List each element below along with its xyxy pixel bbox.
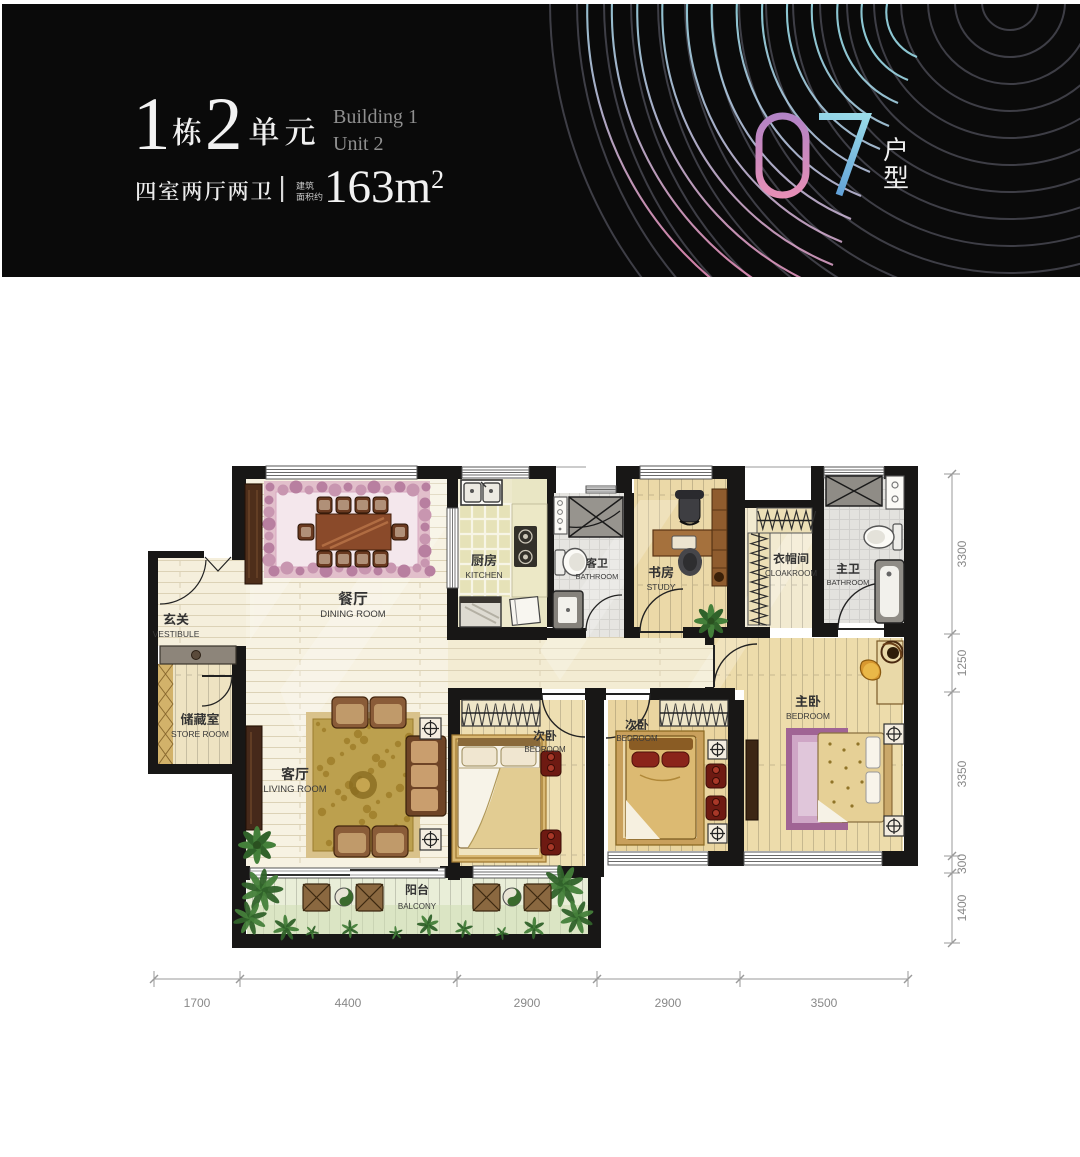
svg-text:2900: 2900 xyxy=(514,996,541,1010)
svg-text:VESTIBULE: VESTIBULE xyxy=(153,629,200,639)
svg-text:1700: 1700 xyxy=(184,996,211,1010)
svg-text:STORE ROOM: STORE ROOM xyxy=(171,729,229,739)
svg-text:Building 1: Building 1 xyxy=(333,106,418,128)
svg-text:163m2: 163m2 xyxy=(324,161,444,213)
svg-text:1400: 1400 xyxy=(955,894,969,921)
svg-text:4400: 4400 xyxy=(335,996,362,1010)
svg-text:3350: 3350 xyxy=(955,760,969,787)
svg-text:300: 300 xyxy=(955,854,969,874)
svg-text:BEDROOM: BEDROOM xyxy=(524,745,566,754)
svg-text:KITCHEN: KITCHEN xyxy=(465,570,502,580)
svg-text:2900: 2900 xyxy=(655,996,682,1010)
svg-text:Unit 2: Unit 2 xyxy=(333,133,384,155)
svg-text:DINING ROOM: DINING ROOM xyxy=(320,609,386,620)
svg-text:BATHROOM: BATHROOM xyxy=(576,572,619,581)
svg-text:STUDY: STUDY xyxy=(647,582,676,592)
svg-text:1: 1 xyxy=(133,83,171,166)
svg-text:1250: 1250 xyxy=(955,649,969,676)
svg-text:BALCONY: BALCONY xyxy=(398,902,437,911)
svg-text:CLOAKROOM: CLOAKROOM xyxy=(765,569,817,578)
svg-text:3300: 3300 xyxy=(955,540,969,567)
svg-text:BEDROOM: BEDROOM xyxy=(786,711,830,721)
svg-text:3500: 3500 xyxy=(811,996,838,1010)
svg-text:LIVING ROOM: LIVING ROOM xyxy=(263,784,326,795)
svg-text:2: 2 xyxy=(205,83,243,166)
svg-text:BEDROOM: BEDROOM xyxy=(616,734,658,743)
svg-text:BATHROOM: BATHROOM xyxy=(827,578,870,587)
